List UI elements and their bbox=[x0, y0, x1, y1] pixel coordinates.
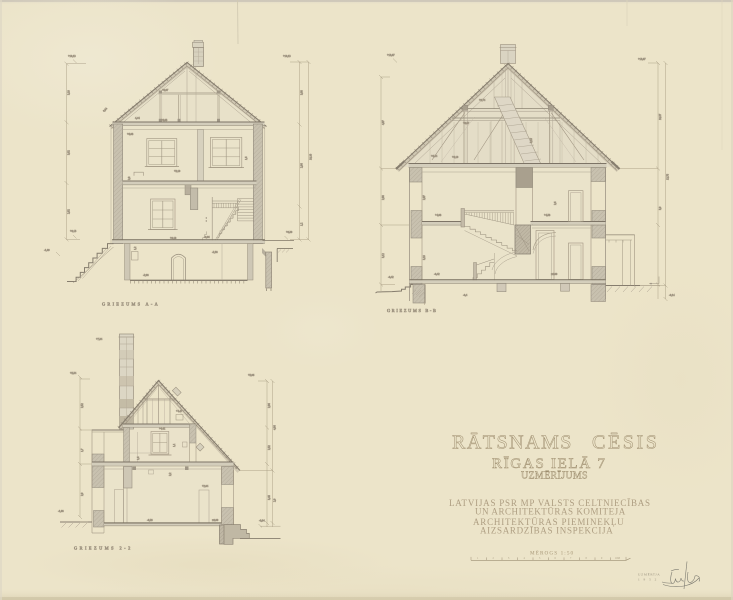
svg-text:2,98: 2,98 bbox=[382, 195, 385, 200]
svg-text:+10,13: +10,13 bbox=[283, 55, 291, 58]
svg-text:-1,09: -1,09 bbox=[44, 249, 50, 252]
svg-text:UN ARCHITEKTŪRAS KOMITEJA: UN ARCHITEKTŪRAS KOMITEJA bbox=[475, 507, 626, 517]
svg-text:+6,34: +6,34 bbox=[431, 155, 438, 158]
svg-text:+9,74: +9,74 bbox=[479, 99, 486, 102]
svg-text:4,44: 4,44 bbox=[135, 117, 140, 120]
svg-text:2,92: 2,92 bbox=[68, 209, 71, 214]
svg-text:+6,03: +6,03 bbox=[161, 119, 168, 122]
svg-text:4,87: 4,87 bbox=[382, 120, 385, 125]
svg-text:+4,47: +4,47 bbox=[176, 410, 183, 413]
svg-text:+6,08: +6,08 bbox=[127, 133, 134, 136]
svg-text:10,10: 10,10 bbox=[310, 153, 313, 160]
svg-text:±0,00: ±0,00 bbox=[212, 519, 219, 522]
svg-text:2,32: 2,32 bbox=[268, 445, 271, 450]
svg-text:UZMĒRĪJUMS: UZMĒRĪJUMS bbox=[521, 471, 588, 482]
svg-text:-0,4: -0,4 bbox=[463, 294, 468, 297]
svg-text:UZMĒRĪJA: UZMĒRĪJA bbox=[638, 572, 660, 577]
svg-text:+0,13: +0,13 bbox=[70, 230, 77, 233]
svg-text:+13,67: +13,67 bbox=[387, 54, 395, 57]
svg-text:4,96: 4,96 bbox=[274, 425, 277, 430]
svg-text:±0,00: ±0,00 bbox=[551, 273, 558, 276]
svg-text:-0,42: -0,42 bbox=[388, 276, 394, 279]
svg-text:1 9 5 2: 1 9 5 2 bbox=[638, 578, 658, 582]
svg-text:3,46: 3,46 bbox=[268, 495, 271, 500]
svg-text:2,52: 2,52 bbox=[81, 403, 84, 408]
svg-text:+4,58: +4,58 bbox=[544, 214, 551, 217]
svg-text:+0,30: +0,30 bbox=[286, 231, 293, 234]
svg-text:13,75: 13,75 bbox=[667, 173, 670, 180]
svg-text:-0,14: -0,14 bbox=[669, 294, 675, 297]
svg-text:GRIEZUMS B-B: GRIEZUMS B-B bbox=[387, 308, 438, 313]
svg-text:+10,13: +10,13 bbox=[68, 55, 76, 58]
svg-text:3,12: 3,12 bbox=[382, 253, 385, 258]
svg-text:-2,38: -2,38 bbox=[212, 251, 218, 254]
svg-text:10M: 10M bbox=[615, 557, 621, 560]
svg-text:3,08: 3,08 bbox=[301, 90, 304, 95]
svg-text:5,16: 5,16 bbox=[530, 138, 533, 143]
svg-text:2,96: 2,96 bbox=[268, 403, 271, 408]
svg-text:-0,28: -0,28 bbox=[147, 519, 153, 522]
svg-text:CĒSIS: CĒSIS bbox=[592, 432, 659, 454]
svg-text:10,37: 10,37 bbox=[659, 113, 662, 120]
svg-text:-0,42: -0,42 bbox=[434, 273, 440, 276]
svg-text:3,10: 3,10 bbox=[423, 255, 426, 260]
svg-text:+5,54: +5,54 bbox=[70, 372, 77, 375]
svg-text:2,87: 2,87 bbox=[423, 195, 426, 200]
svg-text:-2,98: -2,98 bbox=[143, 274, 149, 277]
svg-text:+6,10: +6,10 bbox=[452, 156, 459, 159]
svg-text:-1,98: -1,98 bbox=[58, 510, 64, 513]
svg-text:+4,98: +4,98 bbox=[435, 214, 442, 217]
svg-text:+13,67: +13,67 bbox=[638, 58, 646, 61]
svg-text:MĒROGS 1:50: MĒROGS 1:50 bbox=[530, 550, 574, 557]
svg-text:+4,42: +4,42 bbox=[159, 428, 166, 431]
svg-text:+3,10: +3,10 bbox=[174, 170, 181, 173]
svg-text:-0,94: -0,94 bbox=[259, 520, 265, 523]
svg-text:+7,34: +7,34 bbox=[96, 338, 103, 341]
svg-text:3,02: 3,02 bbox=[68, 150, 71, 155]
svg-text:-0,06: -0,06 bbox=[204, 236, 210, 239]
svg-text:RĀTSNAMS: RĀTSNAMS bbox=[452, 432, 573, 454]
svg-text:3,10: 3,10 bbox=[68, 90, 71, 95]
svg-text:AIZSARDZĪBAS INSPEKCIJA: AIZSARDZĪBAS INSPEKCIJA bbox=[480, 525, 613, 535]
svg-text:+5,96: +5,96 bbox=[248, 374, 255, 377]
svg-text:+8,97: +8,97 bbox=[162, 89, 169, 92]
svg-text:+2,04: +2,04 bbox=[202, 485, 209, 488]
svg-text:+0,10: +0,10 bbox=[170, 237, 177, 240]
svg-text:GRIEZUMS 2-2: GRIEZUMS 2-2 bbox=[74, 546, 133, 551]
svg-text:GRIEZUMS A-A: GRIEZUMS A-A bbox=[102, 302, 160, 307]
svg-text:+8,57: +8,57 bbox=[463, 122, 470, 125]
svg-text:2,96: 2,96 bbox=[301, 163, 304, 168]
